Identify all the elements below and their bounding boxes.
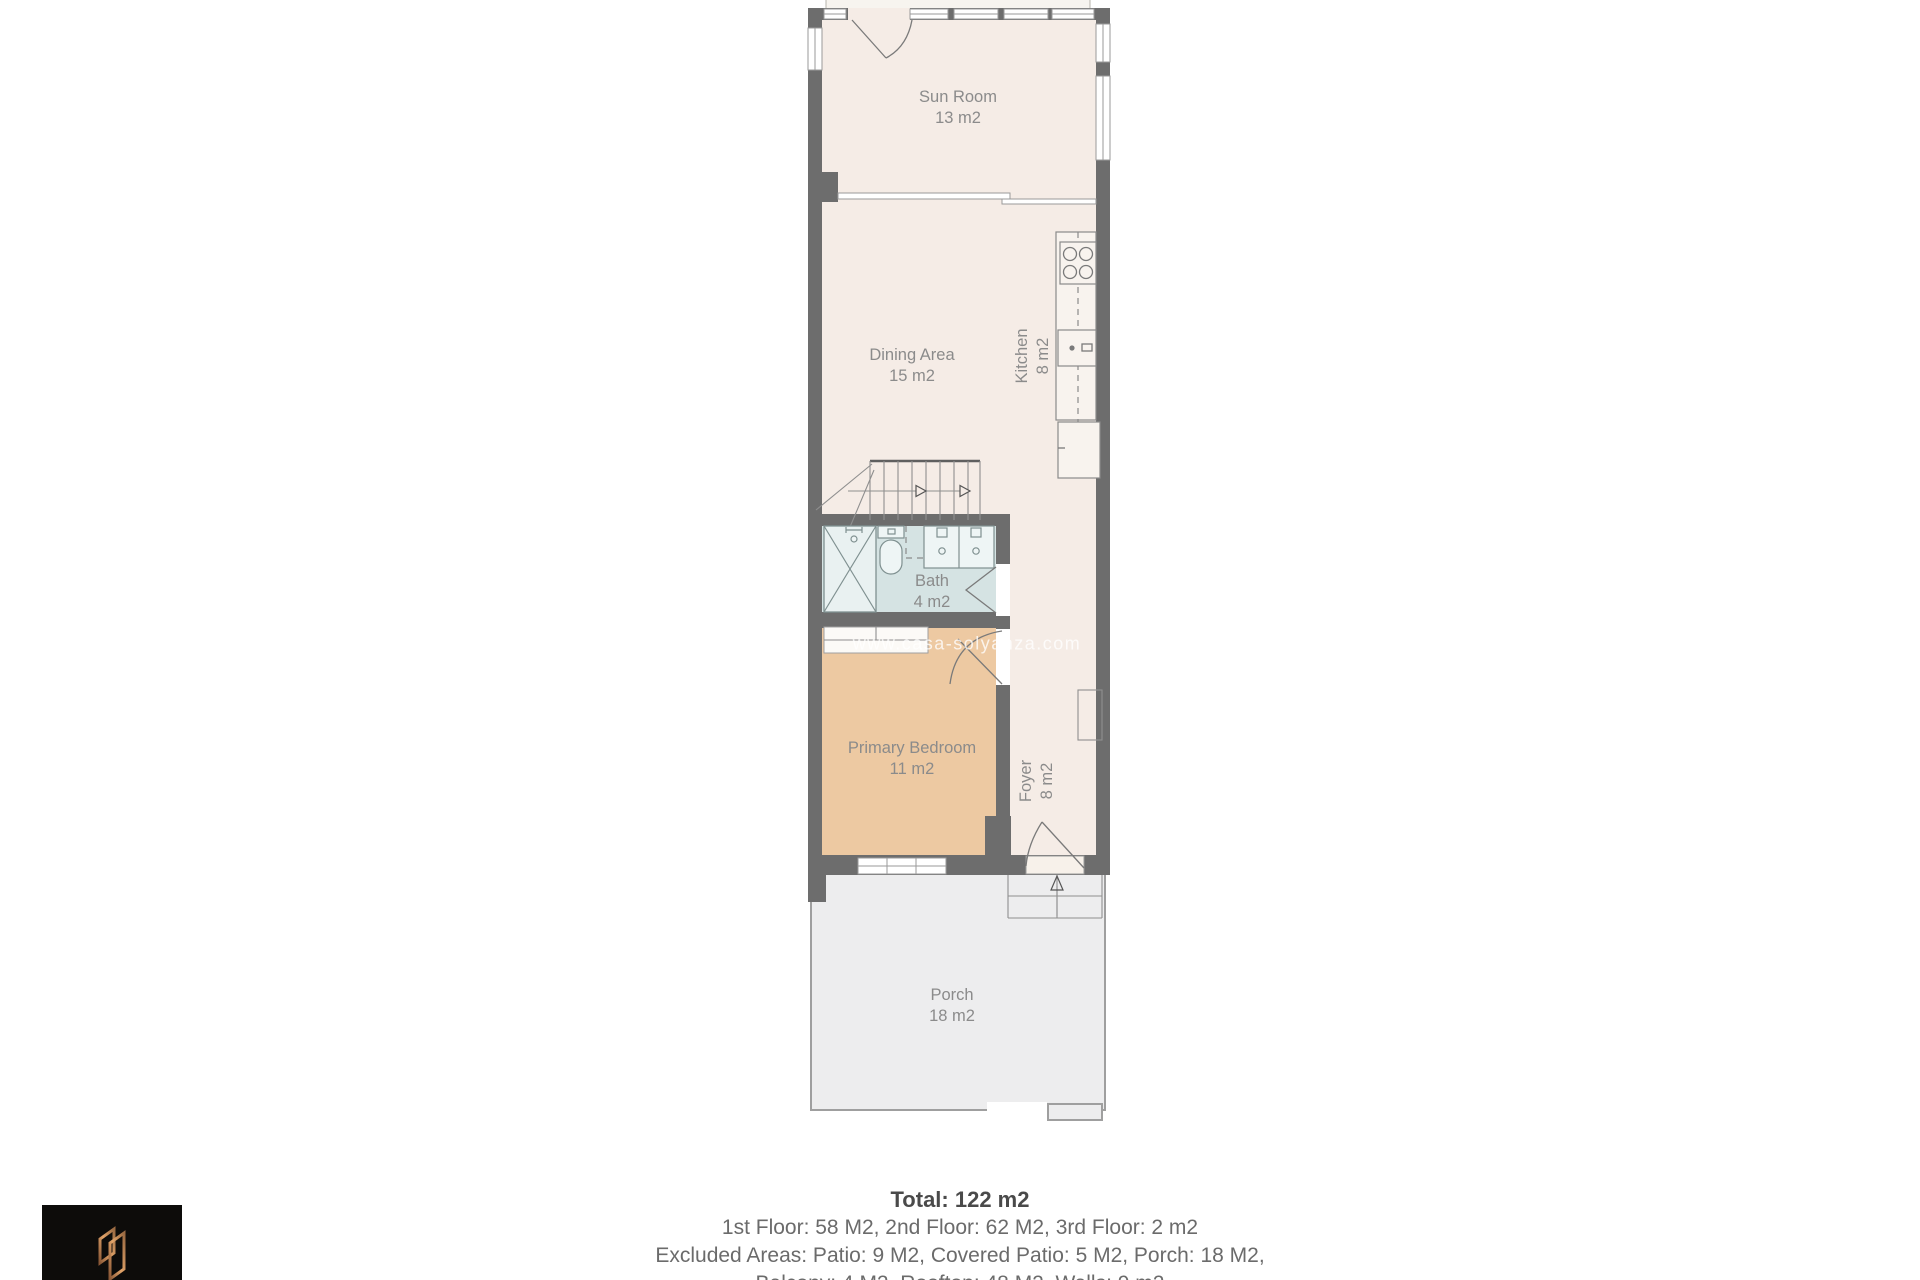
room-label-foyer: Foyer 8 m2 (1016, 760, 1058, 802)
summary-total: Total: 122 m2 (0, 1186, 1920, 1214)
summary-excluded-2: Balcony: 4 M2, Rooftop: 48 M2, Walls: 9 … (0, 1270, 1920, 1280)
room-label-dining-area: Dining Area 15 m2 (869, 345, 954, 387)
room-area: 18 m2 (929, 1006, 975, 1027)
room-area: 5 m2 (941, 0, 978, 5)
room-name: Primary Bedroom (848, 738, 976, 759)
room-area: 8 m2 (1033, 328, 1054, 383)
room-name: Sun Room (919, 87, 997, 108)
room-area: 15 m2 (869, 366, 954, 387)
room-label-bath: Bath 4 m2 (914, 571, 951, 613)
summary-floors: 1st Floor: 58 M2, 2nd Floor: 62 M2, 3rd … (0, 1214, 1920, 1242)
watermark: www.casa-solyanza.com (853, 634, 1082, 655)
room-label-kitchen: Kitchen 8 m2 (1012, 328, 1054, 383)
room-area: 13 m2 (919, 108, 997, 129)
room-label-primary-bedroom: Primary Bedroom 11 m2 (848, 738, 976, 780)
summary-excluded-1: Excluded Areas: Patio: 9 M2, Covered Pat… (0, 1242, 1920, 1270)
kitchen-fixtures (1056, 232, 1100, 478)
room-name: Dining Area (869, 345, 954, 366)
kitchen-sink-icon (1058, 330, 1096, 366)
room-area: 11 m2 (848, 759, 976, 780)
floorplan-page: 5 m2 Sun Room 13 m2 Dining Area 15 m2 Ki… (0, 0, 1920, 1280)
room-name: Kitchen (1012, 328, 1033, 383)
stove-icon (1060, 242, 1096, 284)
room-label-porch: Porch 18 m2 (929, 985, 975, 1027)
building-logo-icon (42, 1205, 182, 1280)
room-name: Porch (929, 985, 975, 1006)
company-logo (42, 1205, 182, 1280)
room-name: Foyer (1016, 760, 1037, 802)
room-area: 4 m2 (914, 592, 951, 613)
room-label-covered-patio: 5 m2 (941, 0, 978, 5)
room-label-sun-room: Sun Room 13 m2 (919, 87, 997, 129)
room-name: Bath (914, 571, 951, 592)
fridge-icon (1058, 422, 1100, 478)
room-area: 8 m2 (1037, 760, 1058, 802)
area-summary: Total: 122 m2 1st Floor: 58 M2, 2nd Floo… (0, 1186, 1920, 1280)
